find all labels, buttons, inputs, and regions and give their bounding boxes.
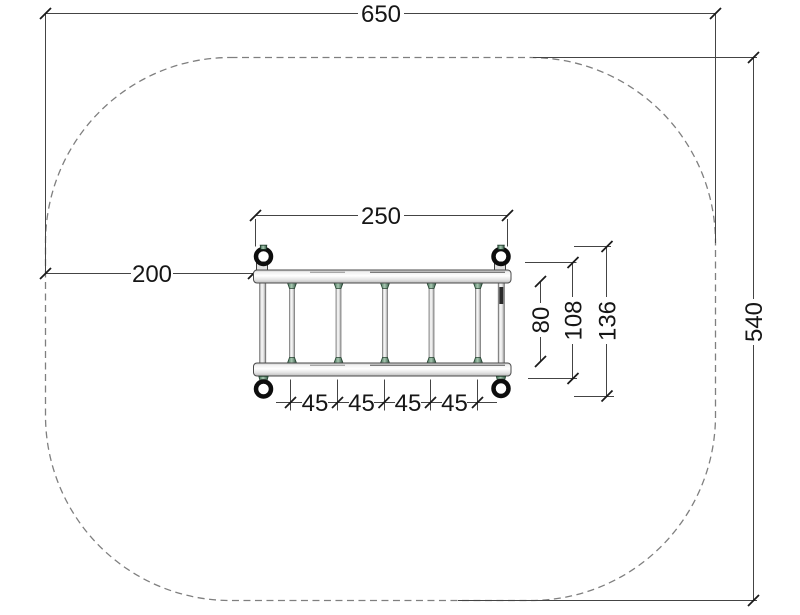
svg-text:540: 540: [741, 302, 768, 342]
svg-text:45: 45: [441, 390, 468, 417]
svg-text:108: 108: [561, 300, 588, 340]
svg-text:650: 650: [361, 1, 401, 28]
svg-text:45: 45: [348, 390, 375, 417]
svg-text:45: 45: [302, 390, 329, 417]
svg-text:200: 200: [132, 261, 172, 288]
svg-text:250: 250: [361, 203, 401, 230]
svg-text:45: 45: [395, 390, 422, 417]
svg-text:80: 80: [528, 307, 555, 334]
svg-text:136: 136: [595, 301, 622, 341]
